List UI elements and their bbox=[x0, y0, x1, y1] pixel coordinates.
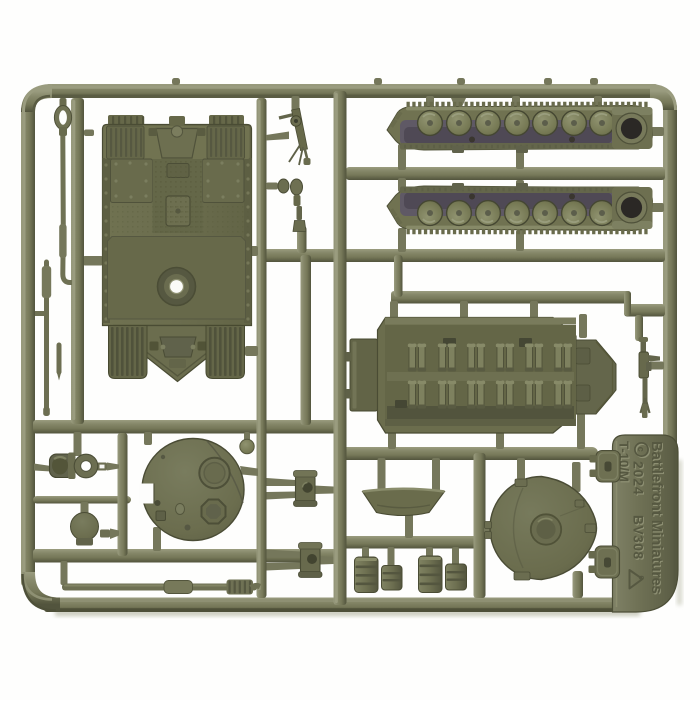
svg-text:6: 6 bbox=[637, 576, 646, 580]
svg-text:Battlefront Miniatures: Battlefront Miniatures bbox=[648, 441, 664, 594]
svg-text:c: c bbox=[636, 447, 646, 452]
svg-text:BV308: BV308 bbox=[631, 515, 646, 560]
